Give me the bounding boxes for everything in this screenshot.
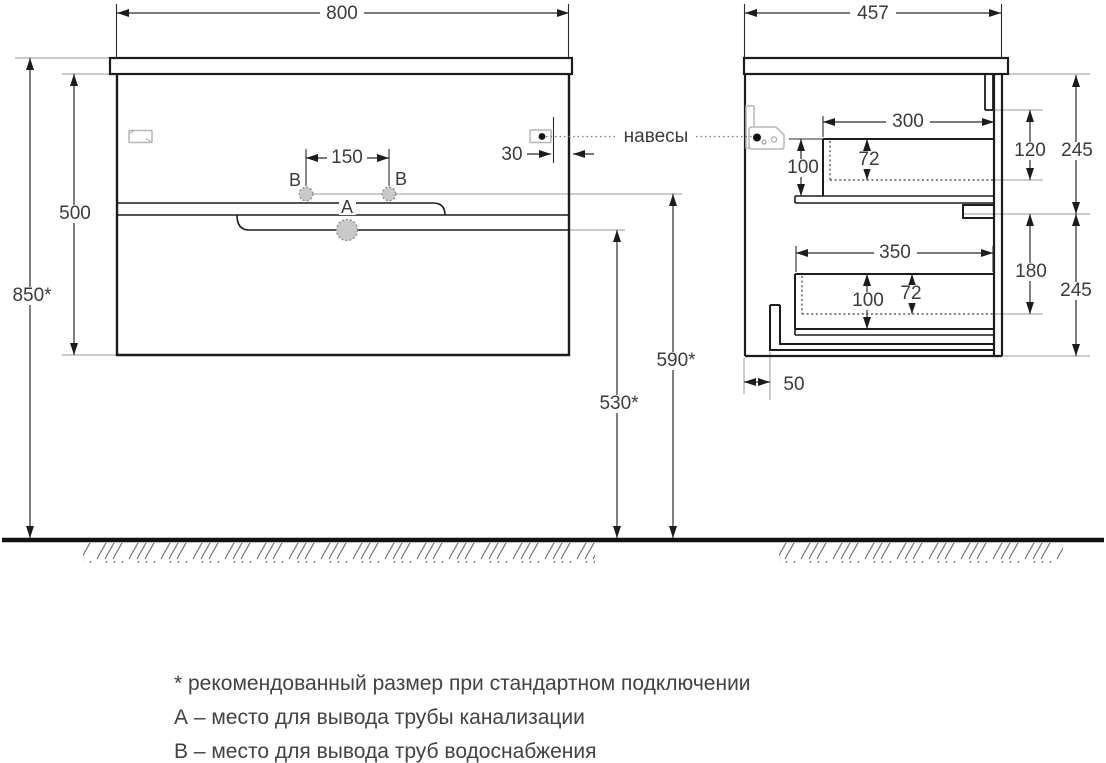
front-upper-handle-groove xyxy=(117,203,445,215)
upper-drawer-inner-label: 72 xyxy=(858,149,879,170)
front-countertop xyxy=(110,58,572,74)
supply-spacing-label: 150 xyxy=(331,147,363,168)
plinth-bracket xyxy=(770,305,994,350)
lower-drawer-width-label: 350 xyxy=(879,242,911,263)
hinge-plate-right-icon xyxy=(530,130,551,143)
supply-height-label: 590* xyxy=(656,350,696,371)
lower-drawer-box xyxy=(795,274,994,329)
hinge-offset-label: 30 xyxy=(501,144,522,165)
upper-drawer-inner-dashed xyxy=(830,141,994,180)
upper-drawer-width-label: 300 xyxy=(892,111,924,132)
water-supply-marker-right xyxy=(382,187,396,201)
wall-bracket-icon xyxy=(746,106,784,149)
side-depth-label: 457 xyxy=(857,3,889,24)
dimension-labels: 800 457 500 850* 150 30 навесы 300 100 7… xyxy=(8,3,1097,414)
legend-note-asterisk: * рекомендованный размер при стандартном… xyxy=(174,672,751,696)
front-lower-handle-groove xyxy=(237,215,569,230)
front-width-label: 800 xyxy=(326,3,358,24)
side-countertop xyxy=(744,58,1008,74)
drain-height-label: 530* xyxy=(599,393,639,414)
legend-note-b: В – место для вывода труб водоснабжения xyxy=(174,740,596,763)
water-supply-marker-left xyxy=(299,187,313,201)
extension-lines xyxy=(15,58,1090,400)
lower-drawer-inner-label: 72 xyxy=(900,283,921,304)
plinth-recess-label: 50 xyxy=(783,374,804,395)
lower-offset-label: 180 xyxy=(1015,261,1047,282)
technical-drawing-page: 800 457 500 850* 150 30 навесы 300 100 7… xyxy=(0,0,1106,763)
install-height-label: 850* xyxy=(12,285,52,306)
floor xyxy=(2,540,1104,563)
upper-section-label: 245 xyxy=(1061,140,1093,161)
side-view xyxy=(744,58,1008,356)
hangers-label: навесы xyxy=(624,126,689,147)
drain-point-label: A xyxy=(341,197,353,217)
upper-drawer-height-label: 100 xyxy=(787,157,819,178)
lower-section-label: 245 xyxy=(1060,280,1092,301)
legend-note-a: А – место для вывода трубы канализации xyxy=(174,706,585,730)
upper-drawer-bottom-panel xyxy=(795,196,994,203)
carcass-height-label: 500 xyxy=(59,203,91,224)
dimensions xyxy=(30,4,1076,538)
handle-recess-notch xyxy=(963,205,994,218)
lower-drawer-height-label: 100 xyxy=(852,290,884,311)
hinge-plate-left-icon xyxy=(129,131,152,143)
supply-point-label-left: B xyxy=(289,170,301,190)
upper-offset-label: 120 xyxy=(1014,140,1046,161)
supply-point-label-right: B xyxy=(395,169,407,189)
drain-outlet-marker xyxy=(337,220,358,241)
ground-hatching-right xyxy=(779,543,1063,563)
side-top-rail xyxy=(985,75,993,110)
ground-hatching-left xyxy=(83,543,595,563)
upper-drawer-box xyxy=(823,139,994,196)
vanity-dimension-drawing: 800 457 500 850* 150 30 навесы 300 100 7… xyxy=(0,0,1106,763)
